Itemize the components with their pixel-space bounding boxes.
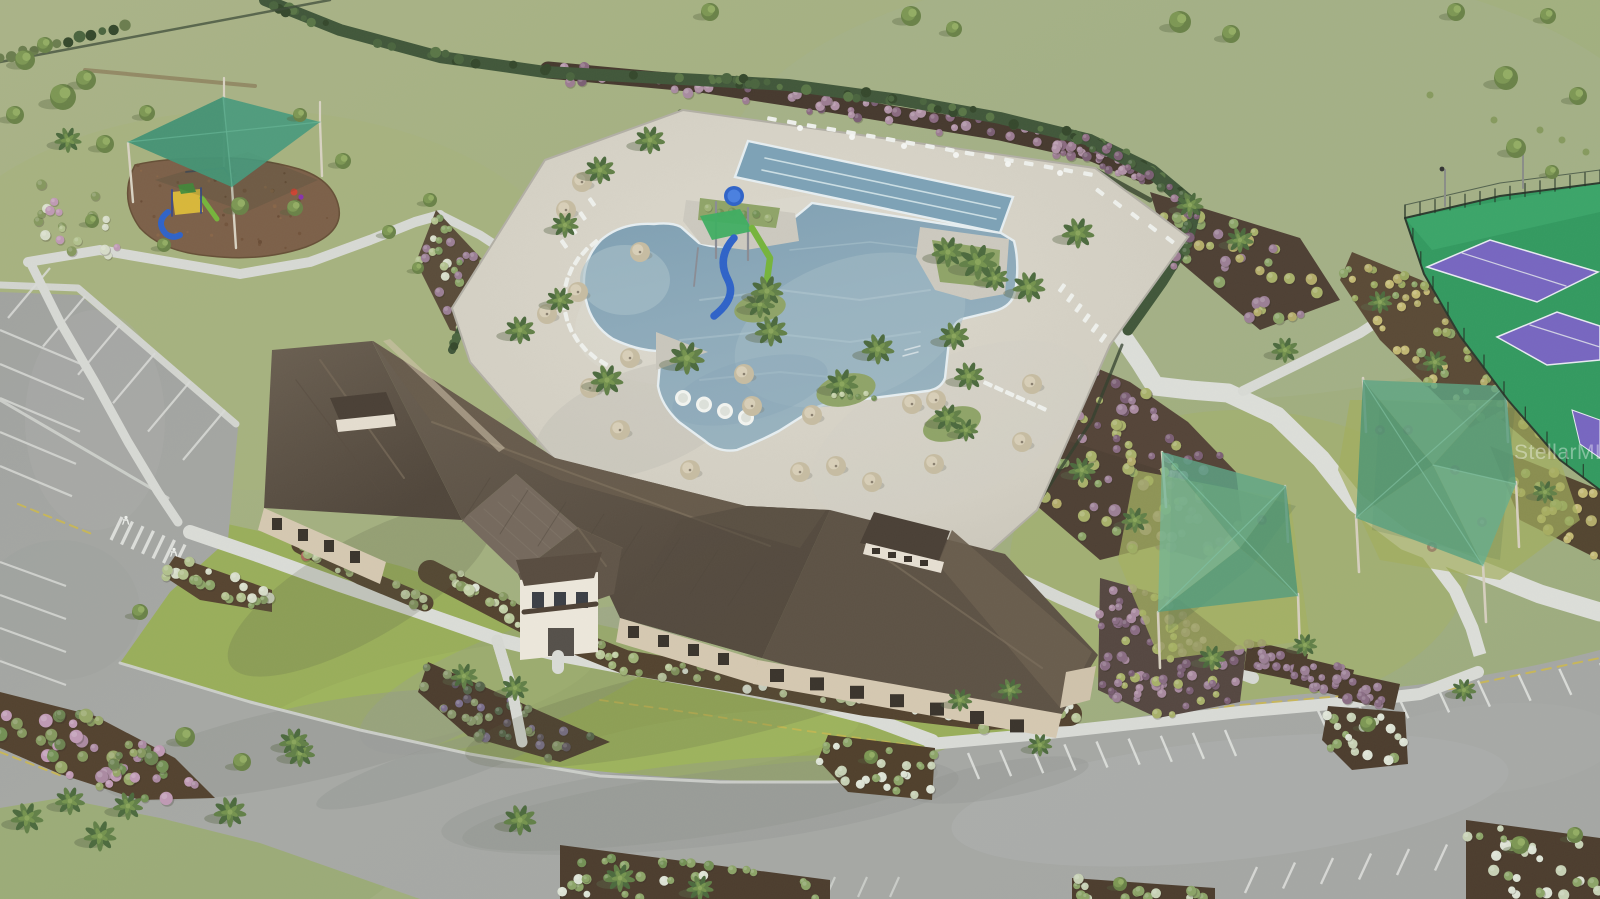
svg-text:StellarMLS: StellarMLS	[1514, 441, 1600, 464]
